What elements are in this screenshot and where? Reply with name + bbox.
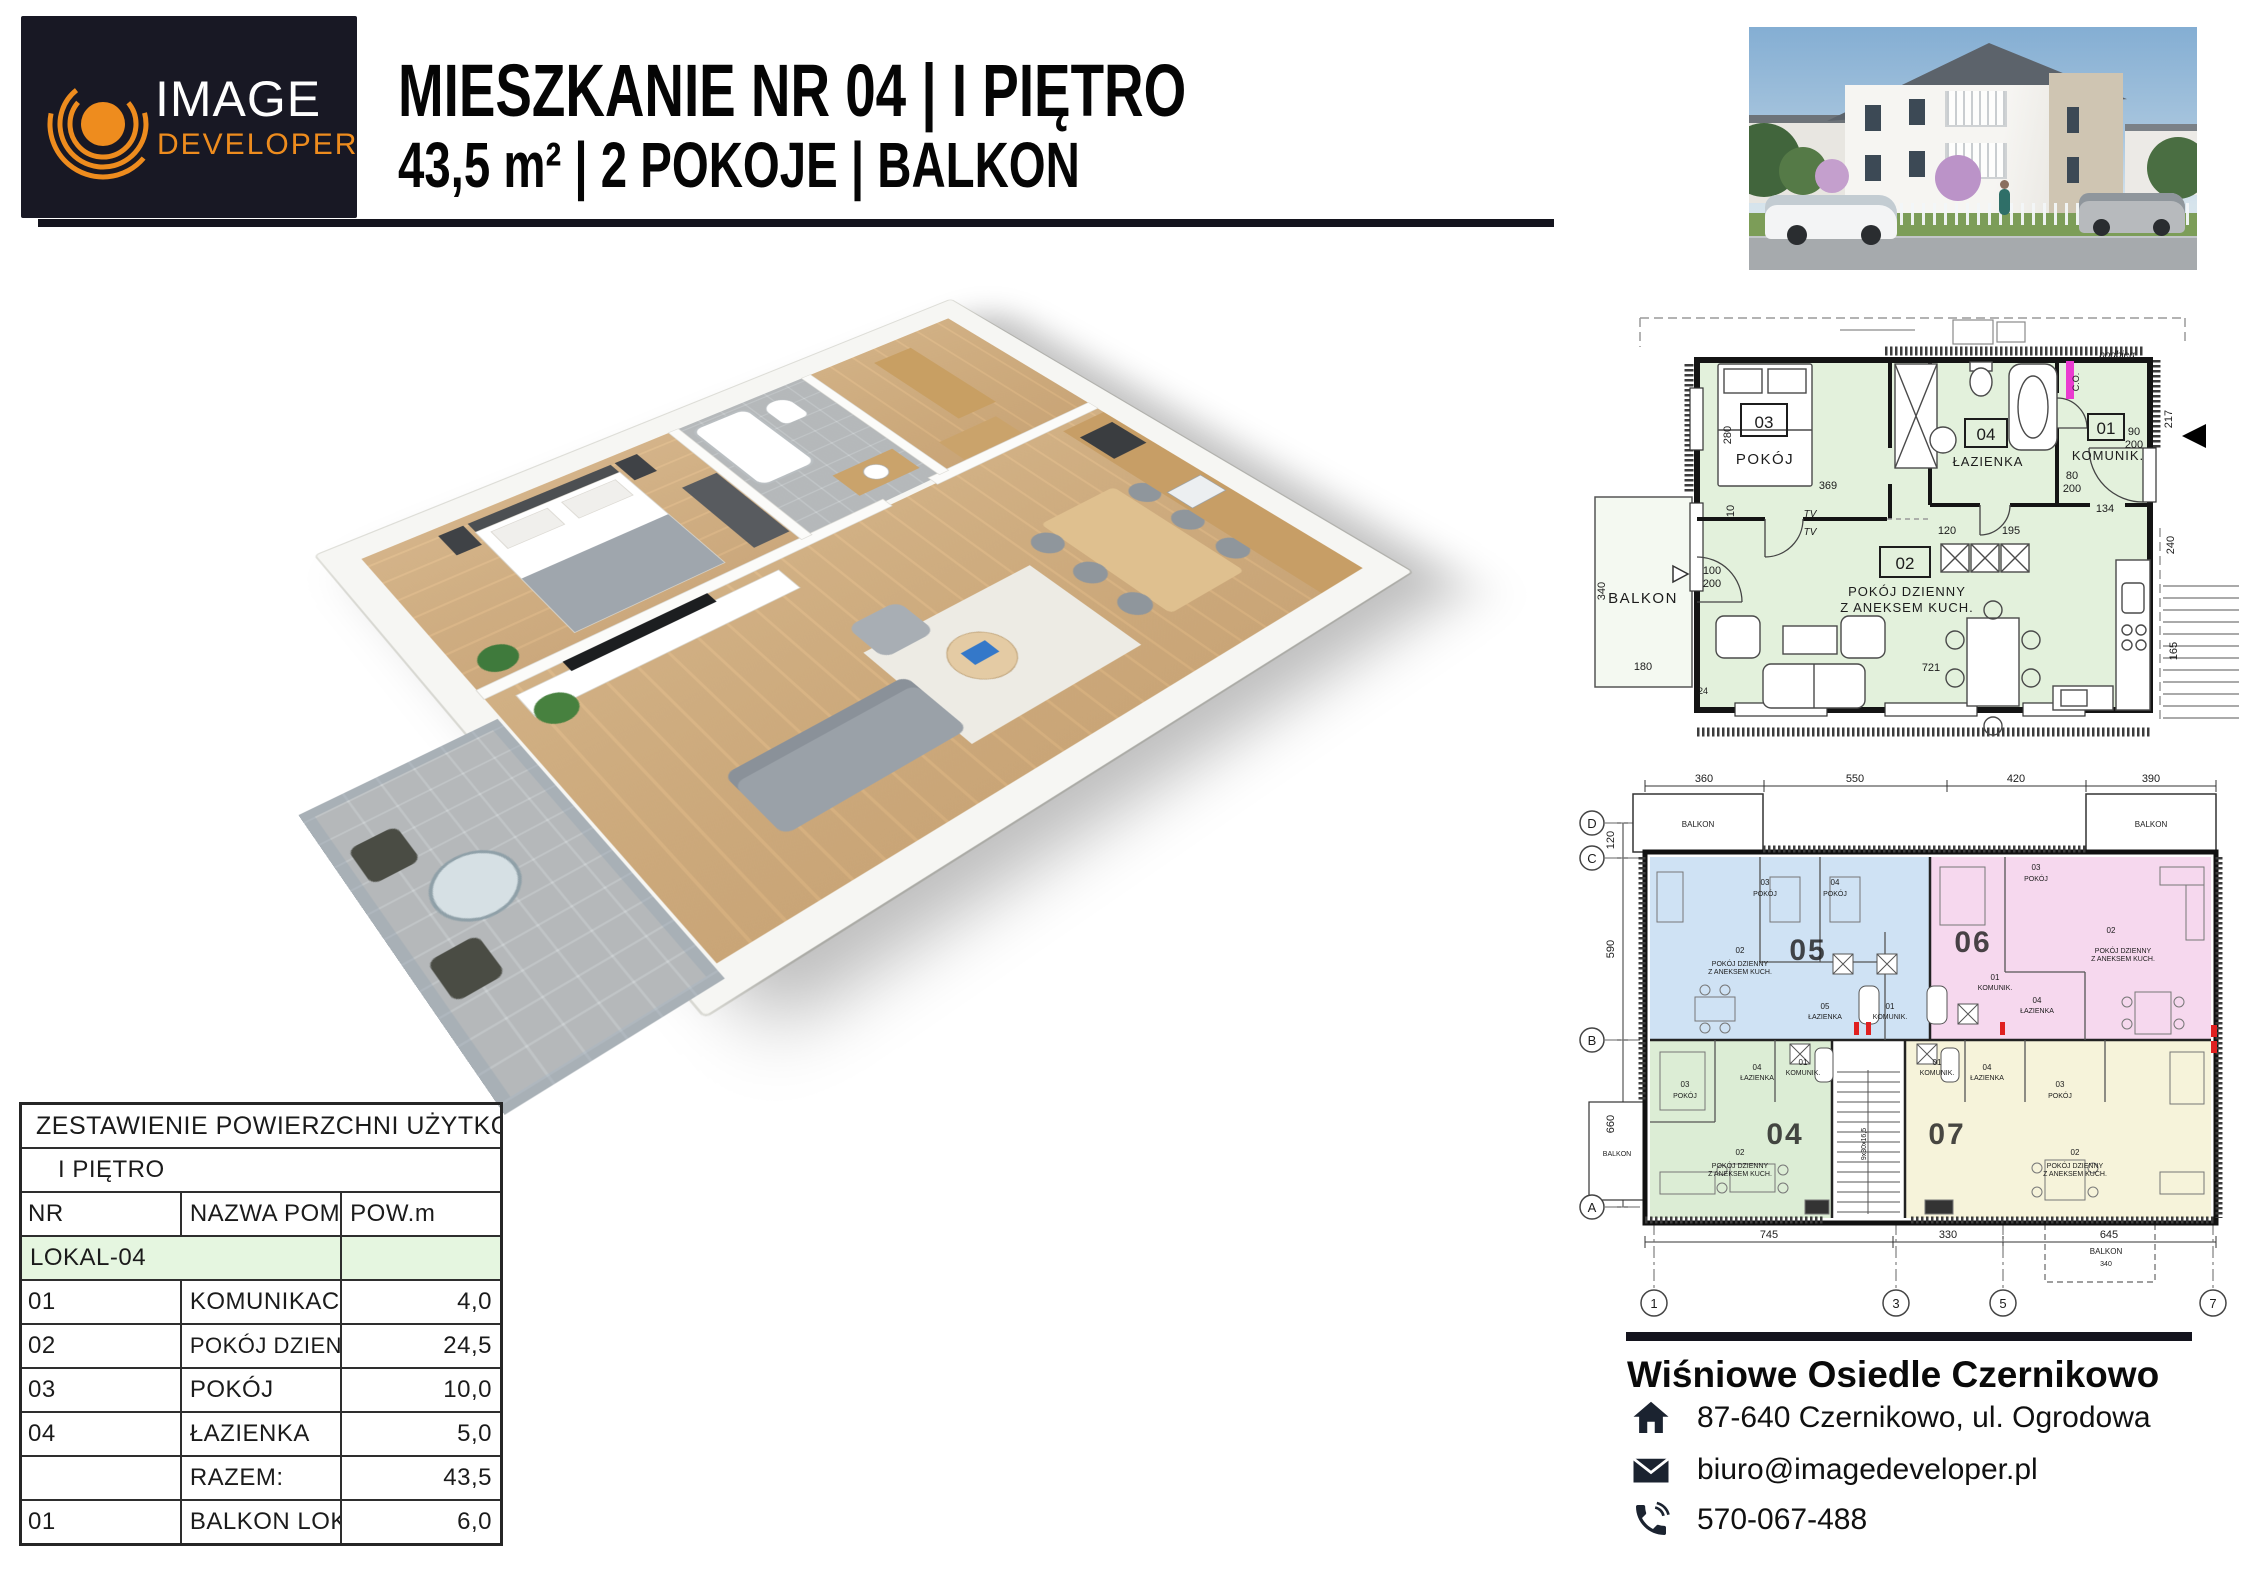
grid-col: 5: [1999, 1296, 2006, 1311]
cell-name: KOMUNIKACJA: [181, 1280, 341, 1324]
dim: 134: [2096, 503, 2114, 515]
grid-row: A: [1588, 1200, 1597, 1215]
cell-area: 24,5: [341, 1324, 501, 1368]
window: [1865, 155, 1881, 181]
cell-nr: 02: [21, 1324, 181, 1368]
room-name: ŁAZIENKA: [1808, 1014, 1842, 1021]
tv-label: TV: [1804, 527, 1818, 538]
floor-plan: D C B A 1 3 5 7 360 550 420 390 120 590 …: [1575, 772, 2245, 1317]
logo-word-developer: DEVELOPER: [157, 128, 358, 162]
phone-icon: [1631, 1500, 1671, 1540]
room-name: KOMUNIK.: [1873, 1014, 1908, 1021]
room-num: 01: [1799, 1058, 1808, 1067]
window: [1909, 151, 1925, 177]
room-name: Z ANEKSEM KUCH.: [1708, 969, 1772, 976]
room-name: POKÓJ: [2024, 874, 2048, 883]
unit-number: 06: [1954, 926, 1991, 959]
room-num: 01: [1933, 1058, 1942, 1067]
grid-row: B: [1588, 1033, 1597, 1048]
contact-address: 87-640 Czernikowo, ul. Ogrodowa: [1697, 1401, 2151, 1435]
unit-number: 07: [1928, 1118, 1965, 1151]
grid-row: C: [1587, 851, 1596, 866]
dim: 590: [1605, 940, 1617, 958]
table-row: 04 ŁAZIENKA 5,0: [21, 1412, 502, 1456]
dim: 420: [2007, 773, 2025, 785]
dim: 280: [1722, 426, 1734, 444]
room-num: 05: [1821, 1002, 1830, 1011]
room-num: 03: [2056, 1080, 2065, 1089]
room-name: POKÓJ: [1673, 1091, 1697, 1100]
room-num: 02: [2107, 926, 2116, 935]
render-3d-scene: [341, 310, 1385, 987]
logo-word-image: IMAGE: [155, 70, 321, 128]
person-head: [2000, 180, 2009, 189]
apartment-plan: 03 POKÓJ 04 ŁAZIENKA 01 KOMUNIK. 02 POKÓ…: [1585, 298, 2245, 743]
room-num: 01: [1886, 1002, 1895, 1011]
contact-email[interactable]: biuro@imagedeveloper.pl: [1697, 1453, 2038, 1487]
cell-name: POKÓJ DZIENNY Z ANEKSEM KUCHENNYM: [181, 1324, 341, 1368]
cell-area: 5,0: [341, 1412, 501, 1456]
room-name: POKÓJ DZIENNY: [2095, 946, 2152, 955]
cell-nr: 04: [21, 1412, 181, 1456]
window: [1865, 105, 1881, 131]
envelope-icon: [1631, 1450, 1671, 1490]
person: [1999, 189, 2010, 215]
dim: 10: [1725, 505, 1737, 517]
building-photo: [1749, 27, 2197, 270]
dim: 550: [1846, 773, 1864, 785]
table-row: 02 POKÓJ DZIENNY Z ANEKSEM KUCHENNYM 24,…: [21, 1324, 502, 1368]
window: [2067, 107, 2079, 133]
table-title: ZESTAWIENIE POWIERZCHNI UŻYTKOWYCH: [21, 1104, 502, 1149]
dim: 120: [1938, 525, 1956, 537]
dim: 200: [2063, 483, 2081, 495]
podbieg-label: podbieg: [2098, 350, 2135, 361]
room-name: Z ANEKSEM KUCH.: [1840, 600, 1973, 615]
room-name: POKÓJ DZIENNY: [1712, 1161, 1769, 1170]
co-label: C.O.: [2071, 373, 2081, 392]
room-num: 04: [1983, 1063, 1992, 1072]
dim: 721: [1922, 662, 1940, 674]
dim: 200: [1703, 578, 1721, 590]
dim: 645: [2100, 1229, 2118, 1241]
col-header-area: POW.m: [341, 1192, 501, 1236]
room-num: 03: [1681, 1080, 1690, 1089]
dim: 745: [1760, 1229, 1778, 1241]
logo: IMAGE DEVELOPER: [21, 16, 357, 218]
room-name: KOMUNIK.: [1978, 985, 2013, 992]
cell-name: ŁAZIENKA: [181, 1412, 341, 1456]
logo-spiral-icon: [43, 48, 168, 188]
grid-row: D: [1587, 816, 1596, 831]
dim: 24: [1698, 686, 1708, 696]
dim: 660: [1605, 1115, 1617, 1133]
dim: 390: [2142, 773, 2160, 785]
car-wheel: [1787, 225, 1807, 245]
room-num: 01: [1991, 973, 2000, 982]
cell-name: RAZEM:: [181, 1456, 341, 1500]
contact-phone-row[interactable]: 570-067-488: [1631, 1500, 1867, 1540]
contact-phone[interactable]: 570-067-488: [1697, 1503, 1867, 1537]
unit-number: 05: [1789, 934, 1826, 967]
balcony-label: BALKON: [1603, 1151, 1631, 1158]
page-subtitle: 43,5 m² | 2 POKOJE | BALKON: [398, 128, 1080, 202]
room-name: Z ANEKSEM KUCH.: [2091, 956, 2155, 963]
grid-col: 7: [2209, 1296, 2216, 1311]
balcony: [1945, 91, 2007, 127]
window: [1909, 99, 1925, 125]
stairs-label: 9x30x16,5: [1861, 1128, 1868, 1160]
page-title: MIESZKANIE NR 04 | I PIĘTRO: [398, 48, 1186, 133]
balcony-label: BALKON: [2135, 820, 2168, 829]
balcony-label: BALKON: [2090, 1247, 2123, 1256]
cell-nr: 01: [21, 1280, 181, 1324]
cell-name: POKÓJ: [181, 1368, 341, 1412]
dim: 340: [1596, 582, 1608, 600]
entrance-arrow-icon: [2182, 424, 2206, 448]
contact-divider: [1626, 1332, 2192, 1341]
car-wheel: [2153, 219, 2170, 236]
room-name: Z ANEKSEM KUCH.: [1708, 1171, 1772, 1178]
balcony-label: BALKON: [1608, 590, 1678, 607]
dim: 100: [1703, 565, 1721, 577]
car-wheel: [1861, 225, 1881, 245]
col-header-nr: NR: [21, 1192, 181, 1236]
room-name: KOMUNIK.: [1920, 1070, 1955, 1077]
neighbor-fragments: [1840, 320, 2025, 344]
room-num: 02: [1736, 946, 1745, 955]
room-num: 02: [1736, 1148, 1745, 1157]
room-name: POKÓJ: [1736, 451, 1794, 468]
contact-email-row[interactable]: biuro@imagedeveloper.pl: [1631, 1450, 2038, 1490]
room-name: POKÓJ DZIENNY: [1848, 584, 1966, 599]
dim: 340: [2100, 1261, 2112, 1268]
room-num: 03: [1755, 413, 1774, 432]
unit-number: 04: [1766, 1118, 1803, 1151]
room-num: 02: [1896, 554, 1915, 573]
room-num: 04: [1831, 878, 1840, 887]
tv-label: TV: [1804, 509, 1818, 520]
flyer-page: IMAGE DEVELOPER MIESZKANIE NR 04 | I PIĘ…: [0, 0, 2245, 1587]
room-name: ŁAZIENKA: [1740, 1075, 1774, 1082]
area-table: ZESTAWIENIE POWIERZCHNI UŻYTKOWYCH I PIĘ…: [19, 1102, 503, 1546]
dim: 195: [2002, 525, 2020, 537]
col-header-name: NAZWA POM.: [181, 1192, 341, 1236]
dim: 330: [1939, 1229, 1957, 1241]
cell-nr: [21, 1456, 181, 1500]
room-name: Z ANEKSEM KUCH.: [2043, 1171, 2107, 1178]
grid-col: 1: [1650, 1296, 1657, 1311]
room-num: 04: [2033, 996, 2042, 1005]
balcony-label: BALKON: [1682, 820, 1715, 829]
table-row: 03 POKÓJ 10,0: [21, 1368, 502, 1412]
dim: 90: [2128, 426, 2140, 438]
table-row: 01 KOMUNIKACJA 4,0: [21, 1280, 502, 1324]
estate-name: Wiśniowe Osiedle Czernikowo: [1627, 1354, 2159, 1396]
room-num: 04: [1977, 425, 1996, 444]
room-num: 03: [1761, 878, 1770, 887]
room-name: ŁAZIENKA: [1953, 454, 2024, 469]
room-name: ŁAZIENKA: [1970, 1075, 2004, 1082]
grid-col: 3: [1892, 1296, 1899, 1311]
table-row: RAZEM: 43,5: [21, 1456, 502, 1500]
contact-address-row: 87-640 Czernikowo, ul. Ogrodowa: [1631, 1398, 2151, 1438]
room-name: KOMUNIK.: [1786, 1070, 1821, 1077]
room-name: POKÓJ: [1823, 889, 1847, 898]
room-name: POKÓJ: [2048, 1091, 2072, 1100]
cell-area: 4,0: [341, 1280, 501, 1324]
room-num: 01: [2097, 419, 2116, 438]
table-group-area: [341, 1236, 501, 1280]
table-floor: I PIĘTRO: [21, 1148, 502, 1192]
table-group: LOKAL-04: [21, 1236, 342, 1280]
stairs: [1837, 1070, 1900, 1214]
cell-nr: 01: [21, 1500, 181, 1545]
cell-area: 6,0: [341, 1500, 501, 1545]
dim: 360: [1695, 773, 1713, 785]
dim: 80: [2066, 470, 2078, 482]
table-row: 01 BALKON LOKAL-04 6,0: [21, 1500, 502, 1545]
render-3d: [235, 225, 1360, 1055]
cell-name: BALKON LOKAL-04: [181, 1500, 341, 1545]
dim: 369: [1819, 480, 1837, 492]
room-name: POKÓJ: [1753, 889, 1777, 898]
road: [1749, 236, 2197, 270]
room-name: POKÓJ DZIENNY: [2047, 1161, 2104, 1170]
cell-area: 10,0: [341, 1368, 501, 1412]
dim: 240: [2165, 536, 2177, 554]
window: [2067, 157, 2079, 183]
dim: 200: [2125, 439, 2143, 451]
cell-area: 43,5: [341, 1456, 501, 1500]
dim: 165: [2168, 642, 2180, 660]
dim: 217: [2163, 410, 2175, 428]
room-name: ŁAZIENKA: [2020, 1008, 2054, 1015]
room-num: 03: [2032, 863, 2041, 872]
blossom-tree: [1935, 155, 1981, 201]
room-num: 02: [2071, 1148, 2080, 1157]
room-name: POKÓJ DZIENNY: [1712, 959, 1769, 968]
dim: 120: [1605, 831, 1617, 849]
dim: 180: [1634, 661, 1652, 673]
cell-nr: 03: [21, 1368, 181, 1412]
home-icon: [1631, 1398, 1671, 1438]
car-wheel: [2093, 219, 2110, 236]
blossom-tree: [1815, 159, 1849, 193]
room-num: 04: [1753, 1063, 1762, 1072]
